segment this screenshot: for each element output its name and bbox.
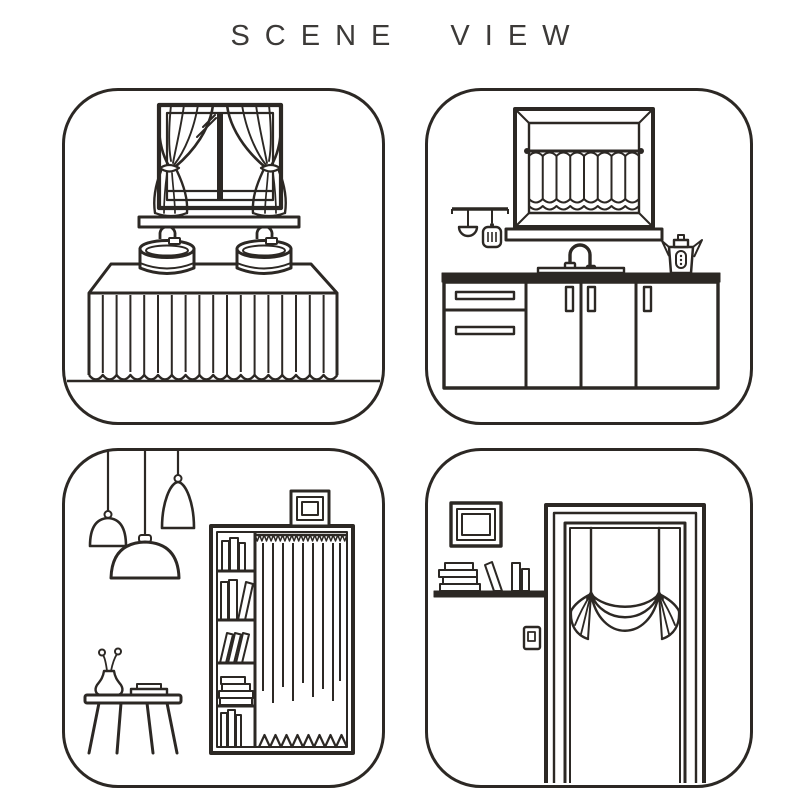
book-stack (439, 562, 529, 591)
beveled-window (506, 109, 662, 240)
panel-doorway-scene (425, 448, 753, 788)
window-frame (159, 105, 281, 208)
door-frame (546, 505, 704, 783)
vessel-sink-left (140, 241, 194, 274)
balloon-swag-curtain (571, 528, 679, 639)
bookshelf-wardrobe (211, 526, 353, 753)
page-title: SCENE VIEW (0, 20, 800, 53)
pendant-lamp-bell (162, 451, 194, 528)
wall-shelf (434, 562, 546, 597)
flower-vase (96, 649, 123, 696)
window-sill (139, 217, 299, 227)
panel-bathroom-scene (62, 88, 385, 425)
scene-view-poster: SCENE VIEW (0, 0, 800, 800)
sink-rim (538, 268, 624, 273)
picture-frame-on-wardrobe (291, 491, 329, 526)
book-on-table (131, 684, 167, 695)
picture-frame (451, 503, 501, 546)
vessel-sink-right (237, 241, 291, 274)
spatula-icon (483, 209, 501, 247)
vertical-book (512, 563, 520, 591)
utensil-rail (452, 209, 508, 247)
window-sill (506, 229, 662, 240)
counter-pleated-skirt-curtain (89, 293, 337, 380)
panel-study-scene (62, 448, 385, 788)
light-switch (524, 627, 540, 649)
kettle-icon (662, 235, 702, 273)
vertical-book (522, 569, 529, 591)
panel-kitchen-scene (425, 88, 753, 425)
ladle-icon (459, 209, 477, 236)
pendant-lamp-small (90, 451, 126, 546)
leaning-book (485, 562, 502, 591)
table-legs (89, 703, 177, 753)
shelf-board (434, 591, 546, 597)
side-table (85, 649, 181, 754)
vanity-counter (89, 264, 337, 293)
kitchen-cabinets (444, 282, 718, 388)
